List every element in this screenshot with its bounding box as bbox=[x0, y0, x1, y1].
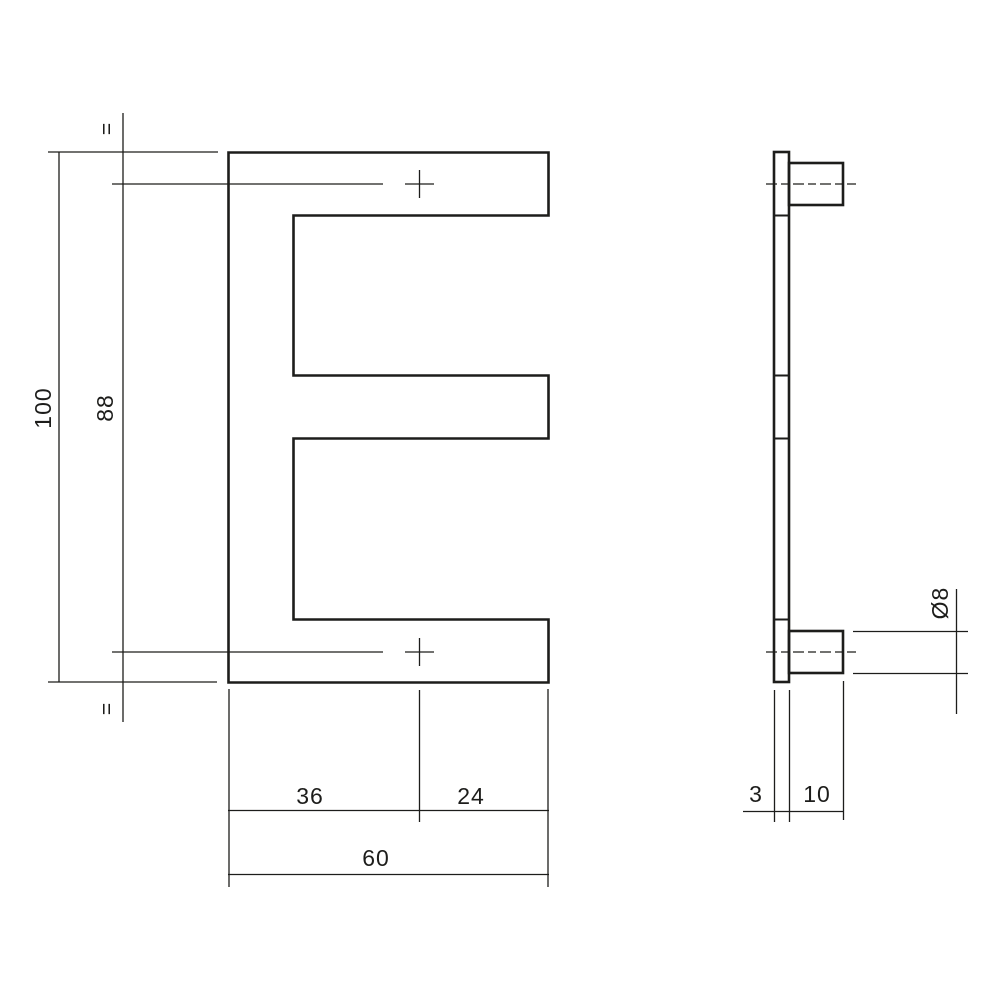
side-view-dimensions: Ø8 3 10 bbox=[743, 587, 968, 822]
technical-drawing: 100 88 = = 36 24 60 bbox=[0, 0, 1000, 1000]
front-view-horizontal-dimensions: 36 24 60 bbox=[228, 689, 549, 887]
front-view-vertical-dimensions: 100 88 = = bbox=[30, 113, 218, 722]
dimension-label-3: 3 bbox=[749, 781, 763, 807]
mounting-hole-bottom-crosshair bbox=[112, 638, 434, 666]
mounting-hole-top-crosshair bbox=[112, 170, 434, 198]
drawing-canvas: 100 88 = = 36 24 60 bbox=[0, 0, 1000, 1000]
plate-profile bbox=[774, 152, 789, 682]
dimension-label-60: 60 bbox=[362, 845, 390, 871]
letter-e-outline bbox=[229, 153, 549, 683]
dimension-label-100: 100 bbox=[30, 387, 56, 428]
front-view bbox=[112, 153, 549, 683]
equal-mark-bottom-icon: = bbox=[96, 703, 119, 715]
side-view bbox=[766, 152, 856, 682]
dimension-label-24: 24 bbox=[457, 783, 485, 809]
equal-mark-top-icon: = bbox=[96, 123, 119, 135]
dimension-label-10: 10 bbox=[803, 781, 831, 807]
dimension-label-pin-diameter: Ø8 bbox=[927, 587, 953, 620]
dimension-label-88: 88 bbox=[92, 394, 118, 422]
dimension-label-36: 36 bbox=[296, 783, 324, 809]
